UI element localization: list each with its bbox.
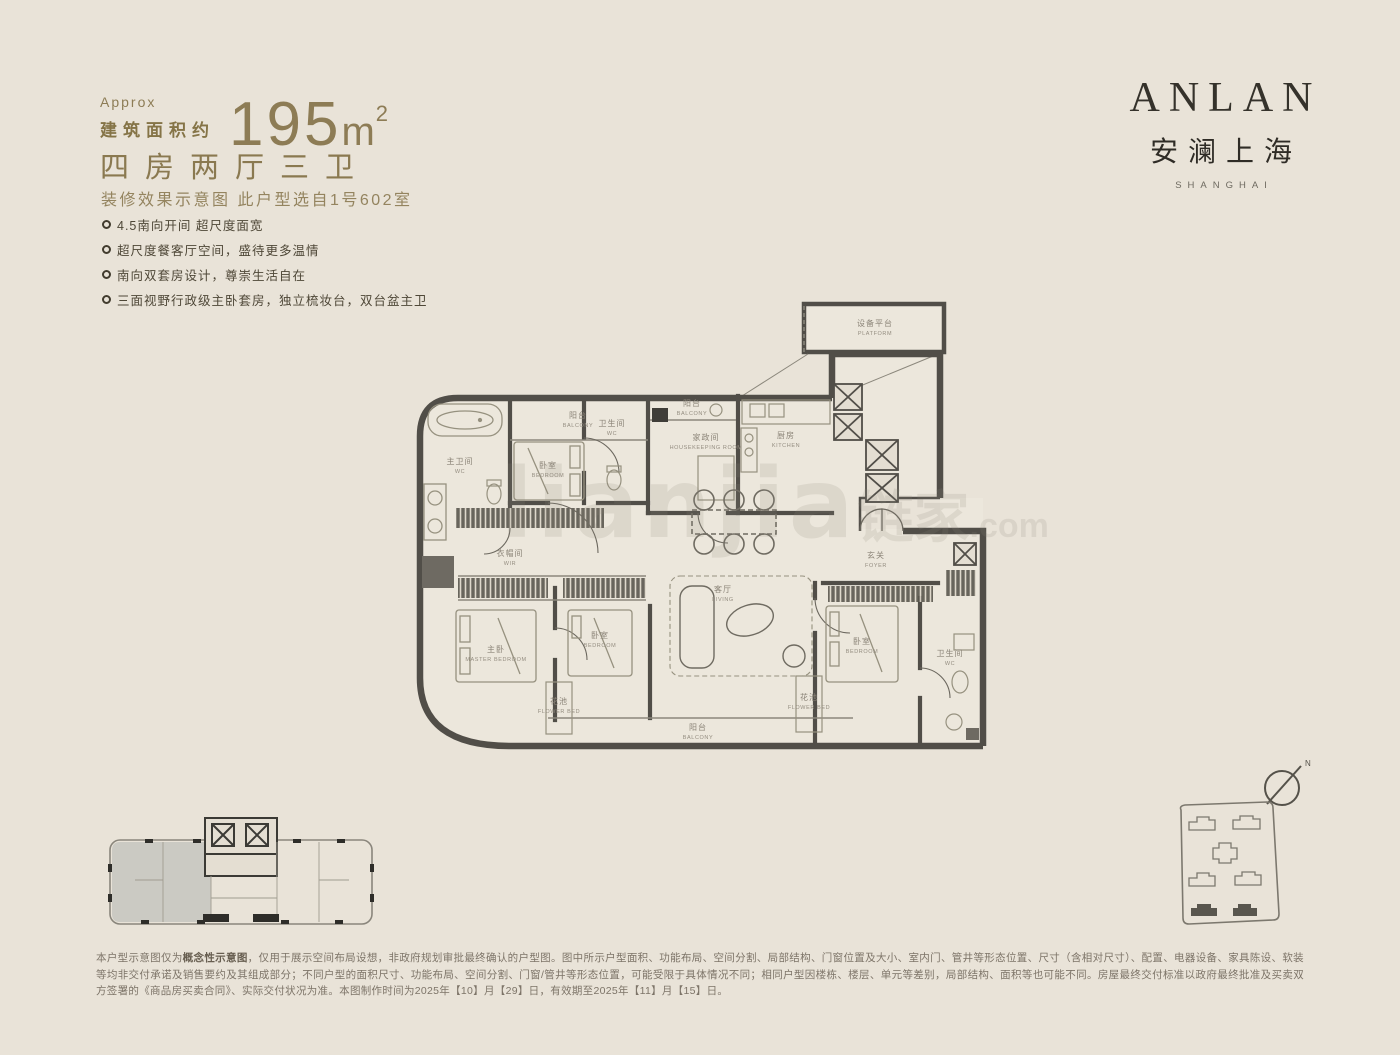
svg-text:N: N — [1305, 759, 1311, 768]
washer — [652, 408, 668, 422]
svg-text:玄关: 玄关 — [867, 550, 885, 560]
key-plan-highlight-unit — [112, 842, 211, 922]
svg-text:BEDROOM: BEDROOM — [584, 643, 617, 649]
key-plan — [105, 810, 377, 935]
svg-text:WC: WC — [945, 661, 955, 667]
layout-title: 四房两厅三卫 — [100, 144, 370, 186]
svg-text:PLATFORM: PLATFORM — [858, 331, 892, 337]
ring-bullet-icon — [102, 270, 111, 279]
svg-text:WIR: WIR — [504, 561, 517, 567]
svg-text:BALCONY: BALCONY — [677, 411, 708, 417]
svg-text:FOYER: FOYER — [865, 563, 887, 569]
brand-logo: ANLAN 安澜上海 SHANGHAI — [1116, 74, 1326, 191]
approx-label: Approx — [100, 94, 215, 110]
site-dark-buildings — [1191, 904, 1257, 916]
page: { "header": { "approx_label": "Approx", … — [0, 0, 1400, 1055]
svg-text:厨房: 厨房 — [777, 430, 795, 440]
svg-text:卧室: 卧室 — [853, 636, 871, 646]
svg-text:设备平台: 设备平台 — [857, 318, 893, 328]
svg-text:主卧: 主卧 — [487, 644, 505, 654]
feature-list: 4.5南向开间 超尺度面宽 超尺度餐客厅空间，盛待更多温情 南向双套房设计，尊崇… — [102, 212, 428, 312]
svg-text:MASTER BEDROOM: MASTER BEDROOM — [465, 657, 526, 663]
disclaimer-prefix: 本户型示意图仅为 — [96, 952, 183, 964]
svg-text:主卫间: 主卫间 — [447, 456, 474, 466]
svg-text:BALCONY: BALCONY — [563, 423, 594, 429]
svg-text:BALCONY: BALCONY — [683, 735, 714, 741]
svg-text:客厅: 客厅 — [714, 584, 732, 594]
svg-text:BEDROOM: BEDROOM — [532, 473, 565, 479]
svg-text:FLOWER BED: FLOWER BED — [538, 709, 580, 715]
disclaimer-bold: 概念性示意图 — [183, 952, 248, 964]
ring-bullet-icon — [102, 245, 111, 254]
svg-text:卧室: 卧室 — [539, 460, 557, 470]
svg-text:阳台: 阳台 — [683, 398, 701, 408]
svg-text:家政间: 家政间 — [693, 432, 720, 442]
svg-text:花池: 花池 — [550, 696, 568, 706]
svg-text:阳台: 阳台 — [689, 722, 707, 732]
ring-bullet-icon — [102, 220, 111, 229]
area-label: 建筑面积约 — [100, 116, 215, 141]
svg-text:阳台: 阳台 — [569, 410, 587, 420]
svg-text:卫生间: 卫生间 — [937, 648, 964, 658]
svg-text:HOUSEKEEPING ROOM: HOUSEKEEPING ROOM — [670, 445, 743, 451]
key-plan-svg — [105, 810, 377, 930]
feature-item: 超尺度餐客厅空间，盛待更多温情 — [102, 237, 428, 262]
svg-text:FLOWER BED: FLOWER BED — [788, 705, 830, 711]
brand-cn: 安澜上海 — [1126, 130, 1326, 170]
site-buildings — [1189, 816, 1261, 886]
layout-subtitle: 装修效果示意图 此户型选自1号602室 — [101, 186, 413, 210]
site-plan-svg: N — [1155, 748, 1365, 933]
floor-plan-svg: 设备平台PLATFORM 阳台BALCONY 卧室BEDROOM 卫生间WC 阳… — [398, 288, 1018, 770]
svg-text:衣帽间: 衣帽间 — [497, 548, 524, 558]
feature-item: 4.5南向开间 超尺度面宽 — [102, 212, 428, 237]
shower — [422, 556, 454, 588]
svg-text:LIVING: LIVING — [712, 597, 734, 603]
svg-text:WC: WC — [455, 469, 465, 475]
svg-text:WC: WC — [607, 431, 617, 437]
svg-text:KITCHEN: KITCHEN — [772, 443, 800, 449]
key-plan-core — [205, 818, 277, 876]
site-plan: N — [1155, 748, 1365, 938]
brand-name: ANLAN — [1125, 74, 1326, 122]
svg-text:花池: 花池 — [800, 692, 818, 702]
svg-text:卧室: 卧室 — [591, 630, 609, 640]
ring-bullet-icon — [102, 295, 111, 304]
feature-item: 三面视野行政级主卧套房，独立梳妆台，双台盆主卫 — [102, 287, 428, 312]
floor-plan: 设备平台PLATFORM 阳台BALCONY 卧室BEDROOM 卫生间WC 阳… — [398, 288, 1018, 770]
entry-notch — [860, 500, 940, 529]
brand-sub: SHANGHAI — [1122, 180, 1326, 191]
compass-icon: N — [1265, 759, 1311, 805]
disclaimer-rest: ，仅用于展示空间布局设想，非政府规划审批最终确认的户型图。图中所示户型面积、功能… — [96, 952, 1304, 997]
svg-text:卫生间: 卫生间 — [599, 418, 626, 428]
feature-item: 南向双套房设计，尊崇生活自在 — [102, 262, 428, 287]
svg-text:BEDROOM: BEDROOM — [846, 649, 879, 655]
disclaimer: 本户型示意图仅为概念性示意图，仅用于展示空间布局设想，非政府规划审批最终确认的户… — [96, 950, 1304, 1000]
